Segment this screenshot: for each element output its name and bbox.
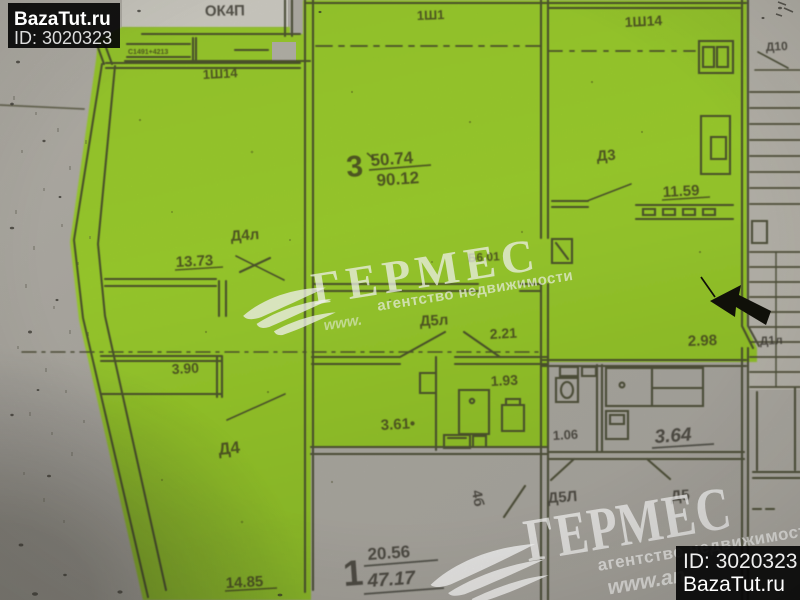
svg-text:ID: 3020323: ID: 3020323 <box>683 550 797 573</box>
svg-text:ID: 3020323: ID: 3020323 <box>14 28 112 48</box>
svg-text:BazaTut.ru: BazaTut.ru <box>14 9 111 30</box>
svg-text:BazaTut.ru: BazaTut.ru <box>683 573 785 596</box>
